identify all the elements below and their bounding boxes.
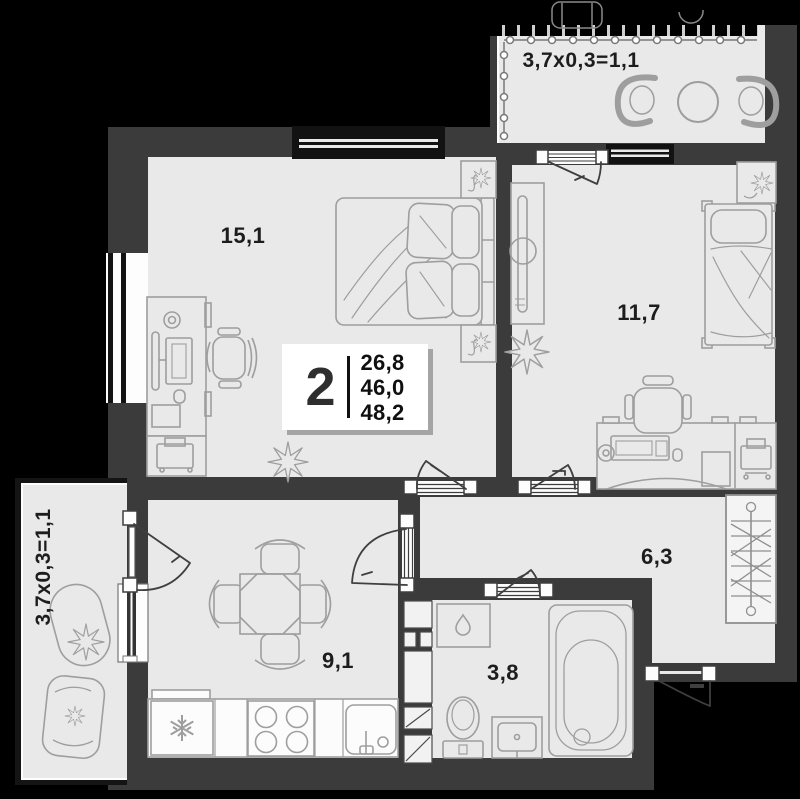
area-line-net: 46,0 [361,375,405,400]
area-line-living: 26,8 [361,350,405,375]
room-kitchen [148,500,398,758]
room-label-bedroom2: 11,7 [617,300,661,326]
room-hallway-corridor [420,497,775,578]
balcony-label-left: 3,7x0,3=1,1 [32,508,56,625]
floor-plan: 15,1 11,7 6,3 9,1 3,8 3,7x0,3=1,1 3,7x0,… [0,0,800,799]
badge-divider [347,356,350,418]
apartment-info-badge: 2 26,8 46,0 48,2 [282,344,428,430]
room-label-bedroom: 15,1 [221,223,266,249]
room-label-hallway: 6,3 [641,544,673,570]
area-line-total: 48,2 [361,400,405,425]
room-bathroom [432,600,632,758]
balcony-top [490,25,765,143]
room-hallway-lower [652,578,775,663]
room-label-bathroom: 3,8 [487,660,519,686]
balcony-parapet-hatch [490,25,758,36]
room-label-kitchen: 9,1 [322,648,354,674]
area-values: 26,8 46,0 48,2 [361,350,405,425]
balcony-label-top: 3,7x0,3=1,1 [522,49,639,73]
rooms-count: 2 [305,360,335,414]
